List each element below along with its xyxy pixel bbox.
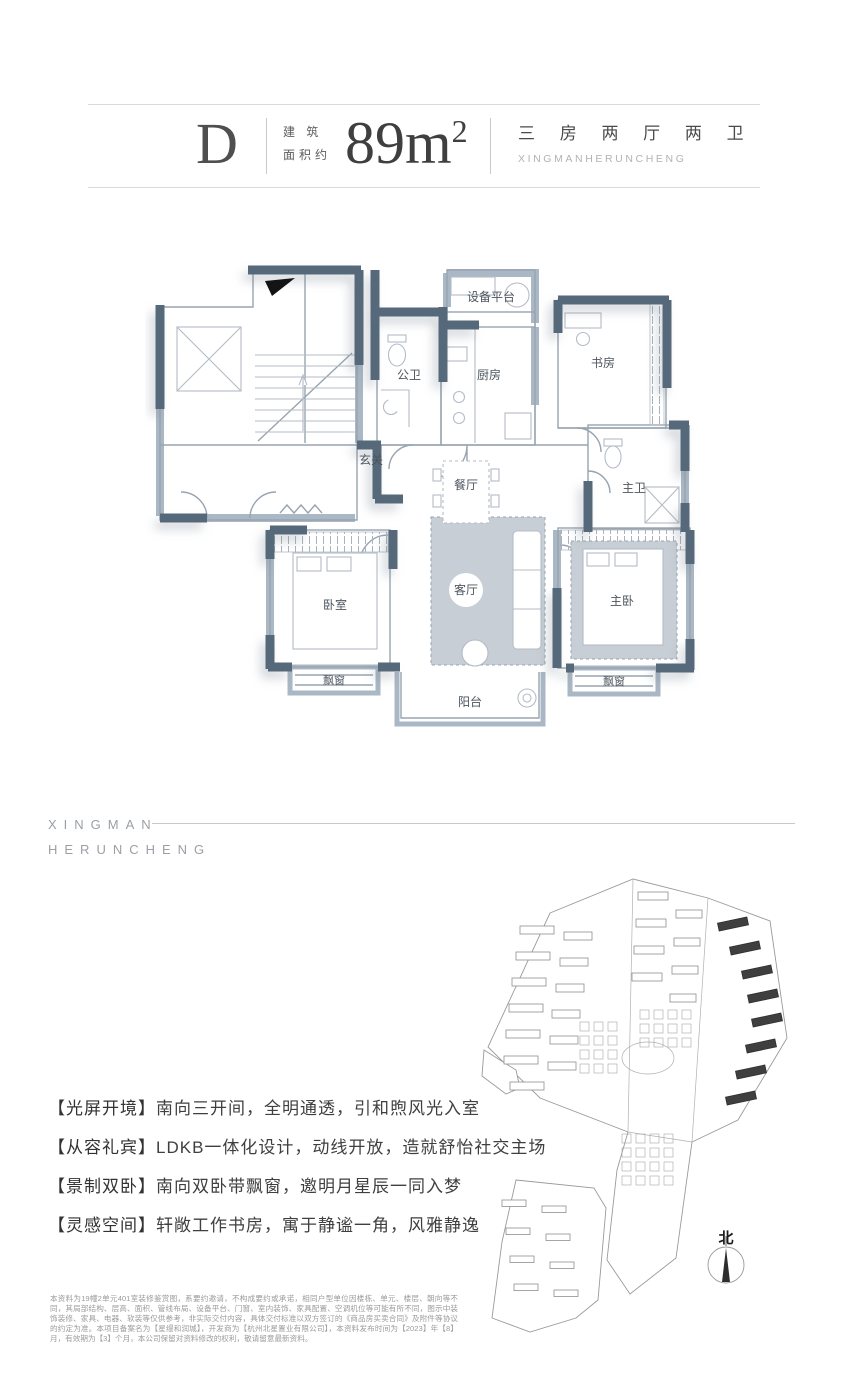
disclaimer: 本资料为19幢2单元401室装修鉴赏图，系要约邀请，不构成要约或承诺，相同户型单… bbox=[50, 1294, 458, 1344]
toilet-master bbox=[605, 446, 621, 468]
brand-english: XINGMANHERUNCHENG bbox=[518, 153, 754, 165]
feature-item: 【光屏开境】南向三开间，全明通透，引和煦风光入室 bbox=[48, 1094, 546, 1119]
feature-item: 【从容礼宾】LDKB一体化设计，动线开放，造就舒怡社交主场 bbox=[48, 1133, 546, 1158]
feature-list: 【光屏开境】南向三开间，全明通透，引和煦风光入室 【从容礼宾】LDKB一体化设计… bbox=[48, 1094, 546, 1236]
room-label-study: 书房 bbox=[591, 355, 615, 370]
area-prefix: 建 筑 面积约 bbox=[283, 121, 331, 167]
room-label-bay-left: 飘窗 bbox=[323, 673, 345, 687]
site-building bbox=[560, 958, 588, 966]
unit-letter: D bbox=[196, 111, 238, 177]
site-building bbox=[509, 1004, 543, 1012]
room-label-bedroom: 卧室 bbox=[323, 597, 347, 612]
fridge bbox=[505, 413, 531, 439]
site-building bbox=[670, 994, 696, 1002]
room-label-foyer: 玄关 bbox=[359, 452, 383, 467]
site-building bbox=[674, 938, 700, 946]
site-building bbox=[552, 1010, 580, 1018]
site-building bbox=[514, 1284, 538, 1291]
feature-tag: 【灵感空间】 bbox=[48, 1216, 156, 1235]
room-label-master-bath: 主卫 bbox=[622, 481, 646, 495]
armchair bbox=[462, 640, 488, 666]
header-divider-2 bbox=[490, 118, 491, 174]
kitchen-sink bbox=[447, 347, 467, 361]
stair-direction-marker bbox=[265, 278, 295, 296]
feature-text: LDKB一体化设计，动线开放，造就舒怡社交主场 bbox=[156, 1138, 546, 1157]
site-building bbox=[506, 1030, 540, 1038]
site-building bbox=[504, 1056, 538, 1064]
site-building bbox=[554, 1290, 578, 1297]
area-exponent: 2 bbox=[452, 113, 468, 149]
site-building bbox=[634, 946, 664, 954]
area-value: 89m2 bbox=[345, 107, 468, 179]
room-label-bay-right: 飘窗 bbox=[603, 674, 625, 688]
furniture bbox=[177, 277, 679, 707]
site-building bbox=[636, 919, 666, 927]
stove-burner bbox=[454, 413, 465, 424]
room-label-balcony: 阳台 bbox=[458, 694, 482, 709]
site-building bbox=[512, 978, 546, 986]
feature-text: 南向三开间，全明通透，引和煦风光入室 bbox=[156, 1099, 480, 1118]
room-label-kitchen: 厨房 bbox=[477, 367, 501, 382]
brand-block: XINGMAN HERUNCHENG bbox=[48, 812, 211, 862]
site-building bbox=[638, 892, 668, 900]
room-label-living: 客厅 bbox=[454, 582, 478, 597]
floorplan: 设备平台 公卫 厨房 书房 玄关 餐厅 主卫 卧室 客厅 主卧 飘窗 飘窗 阳台 bbox=[145, 255, 705, 775]
feature-tag: 【从容礼宾】 bbox=[48, 1138, 156, 1157]
brand-line2: HERUNCHENG bbox=[48, 837, 211, 862]
site-building bbox=[676, 910, 702, 918]
room-label-dining: 餐厅 bbox=[454, 477, 478, 492]
brand-line1: XINGMAN bbox=[48, 812, 211, 837]
sofa bbox=[513, 531, 541, 649]
site-building bbox=[546, 1234, 570, 1241]
bookshelf-study bbox=[650, 303, 664, 425]
area-prefix-line1: 建 筑 bbox=[283, 121, 331, 144]
site-building bbox=[510, 1256, 534, 1263]
feature-tag: 【景制双卧】 bbox=[48, 1177, 156, 1196]
site-building bbox=[564, 932, 592, 940]
feature-tag: 【光屏开境】 bbox=[48, 1099, 156, 1118]
flyer-page: D 建 筑 面积约 89m2 三 房 两 厅 两 卫 XINGMANHERUNC… bbox=[0, 0, 848, 1400]
desk bbox=[565, 313, 601, 328]
room-label-master-bedroom: 主卧 bbox=[610, 594, 634, 608]
brand-rule bbox=[152, 823, 795, 824]
feature-text: 南向双卧带飘窗，邀明月星辰一同入梦 bbox=[156, 1177, 462, 1196]
north-compass: 北 bbox=[708, 1230, 744, 1283]
toilet-guest bbox=[389, 344, 406, 366]
feature-item: 【景制双卧】南向双卧带飘窗，邀明月星辰一同入梦 bbox=[48, 1172, 546, 1197]
header: D 建 筑 面积约 89m2 三 房 两 厅 两 卫 XINGMANHERUNC… bbox=[0, 104, 848, 188]
room-label-equipment-platform: 设备平台 bbox=[467, 289, 515, 304]
area-number: 89m bbox=[345, 110, 452, 176]
area-prefix-line2: 面积约 bbox=[283, 144, 331, 167]
desk-chair bbox=[577, 333, 590, 346]
wardrobe-bedroom bbox=[272, 532, 388, 552]
site-building bbox=[556, 984, 584, 992]
feature-item: 【灵感空间】轩敞工作书房，寓于静谧一角，风雅静逸 bbox=[48, 1211, 546, 1236]
stair-arrow bbox=[299, 375, 307, 431]
site-building bbox=[632, 973, 662, 981]
site-building bbox=[520, 926, 554, 934]
north-label: 北 bbox=[718, 1230, 733, 1247]
site-building bbox=[548, 1062, 576, 1070]
site-building bbox=[516, 952, 550, 960]
site-building bbox=[672, 966, 698, 974]
layout-summary: 三 房 两 厅 两 卫 bbox=[518, 119, 754, 144]
dining-table bbox=[443, 461, 489, 523]
site-building bbox=[550, 1036, 578, 1044]
header-right: 三 房 两 厅 两 卫 XINGMANHERUNCHENG bbox=[518, 119, 754, 165]
header-divider-1 bbox=[266, 118, 267, 174]
site-building bbox=[510, 1082, 544, 1090]
feature-text: 轩敞工作书房，寓于静谧一角，风雅静逸 bbox=[156, 1216, 480, 1235]
site-building bbox=[550, 1262, 574, 1269]
room-label-guest-bath: 公卫 bbox=[397, 368, 421, 382]
stove-burner bbox=[454, 392, 465, 403]
